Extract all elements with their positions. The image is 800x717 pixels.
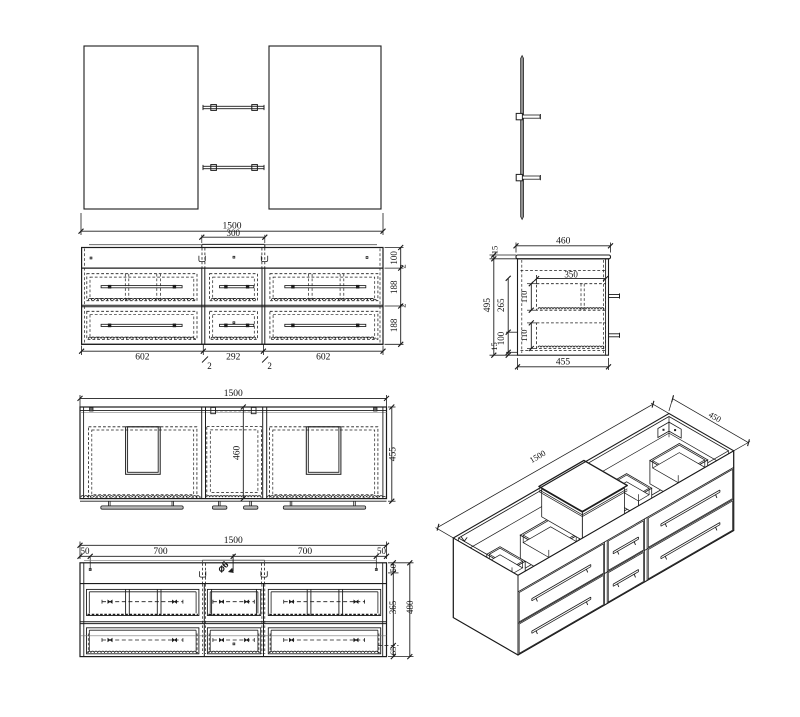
svg-text:110: 110 [519, 291, 529, 303]
svg-text:292: 292 [226, 353, 241, 363]
svg-text:460: 460 [233, 445, 243, 460]
svg-text:265: 265 [496, 298, 506, 312]
svg-text:188: 188 [389, 280, 399, 294]
svg-text:365: 365 [388, 600, 398, 614]
svg-text:50: 50 [388, 564, 398, 573]
svg-text:480: 480 [405, 600, 415, 614]
svg-text:350: 350 [564, 270, 578, 280]
svg-text:15: 15 [489, 246, 499, 255]
svg-text:300: 300 [227, 228, 241, 238]
svg-text:2: 2 [398, 303, 408, 307]
svg-text:50: 50 [377, 546, 387, 556]
svg-text:2: 2 [398, 264, 408, 268]
svg-text:700: 700 [153, 547, 168, 557]
svg-text:495: 495 [483, 298, 493, 313]
svg-text:50: 50 [81, 546, 91, 556]
svg-text:15: 15 [489, 342, 499, 351]
svg-text:2: 2 [207, 361, 212, 371]
svg-text:188: 188 [389, 318, 399, 332]
svg-text:455: 455 [556, 358, 571, 368]
svg-text:1500: 1500 [224, 389, 243, 399]
svg-text:460: 460 [556, 236, 571, 246]
svg-text:65: 65 [388, 647, 398, 656]
svg-text:700: 700 [298, 547, 313, 557]
svg-text:110: 110 [519, 329, 529, 341]
svg-text:100: 100 [389, 251, 399, 265]
svg-text:455: 455 [388, 447, 398, 462]
svg-text:602: 602 [135, 353, 150, 363]
svg-text:602: 602 [316, 353, 331, 363]
svg-text:1500: 1500 [224, 536, 243, 546]
svg-text:2: 2 [267, 361, 272, 371]
